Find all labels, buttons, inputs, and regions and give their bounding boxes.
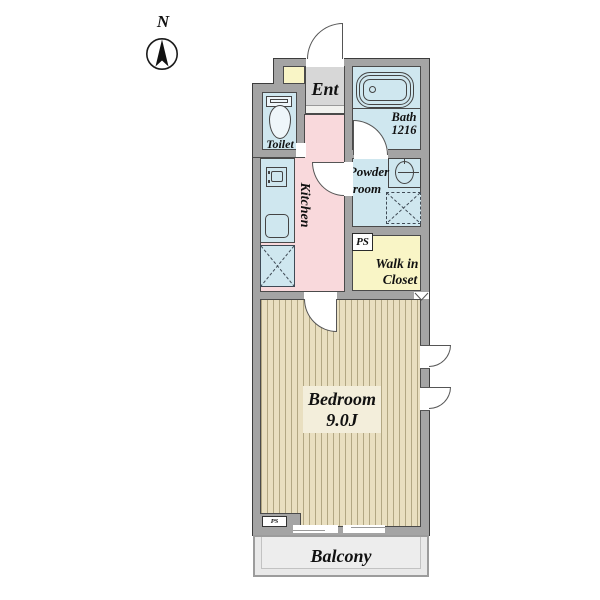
pipe-space-label: PS (356, 236, 369, 248)
powder-door-opening (344, 162, 353, 196)
bedroom-label-plate: Bedroom 9.0J (303, 386, 381, 433)
compass-north-label: N (150, 13, 176, 31)
balcony: Balcony (253, 535, 429, 577)
kitchen-sink-icon (265, 214, 289, 238)
pipe-space-box: PS (352, 233, 373, 251)
stove-icon (266, 167, 287, 187)
casement-window-2-swing (429, 387, 451, 409)
sliding-window-2 (343, 525, 385, 533)
bedroom-label: Bedroom (308, 389, 376, 410)
entrance-label: Ent (304, 80, 346, 99)
casement-window-1-swing (429, 345, 451, 367)
bathtub-icon (356, 72, 414, 108)
bath-drain-icon (369, 86, 376, 93)
entrance-door-icon (307, 23, 343, 59)
walk-in-closet-label-2: Closet (370, 273, 430, 287)
bath-size-label: 1216 (384, 124, 424, 137)
bedroom-size-label: 9.0J (326, 410, 358, 431)
bathtub-deck-line (353, 108, 420, 109)
floorplan: N Toilet Ent Bath 1216 Powd (0, 0, 600, 600)
laundry-space-icon (386, 192, 421, 224)
balcony-label: Balcony (311, 546, 372, 567)
closet-opening-mark (414, 292, 429, 301)
washer-space-icon (260, 245, 295, 287)
kitchen-label: Kitchen (293, 155, 311, 255)
entrance-step (306, 105, 344, 113)
meter-box-label: PS (271, 518, 279, 525)
sliding-window-1 (293, 525, 338, 533)
shoe-cabinet (283, 66, 305, 84)
meter-box: PS (262, 516, 287, 527)
compass-icon (144, 36, 180, 72)
walk-in-closet-label-1: Walk in (367, 257, 427, 271)
